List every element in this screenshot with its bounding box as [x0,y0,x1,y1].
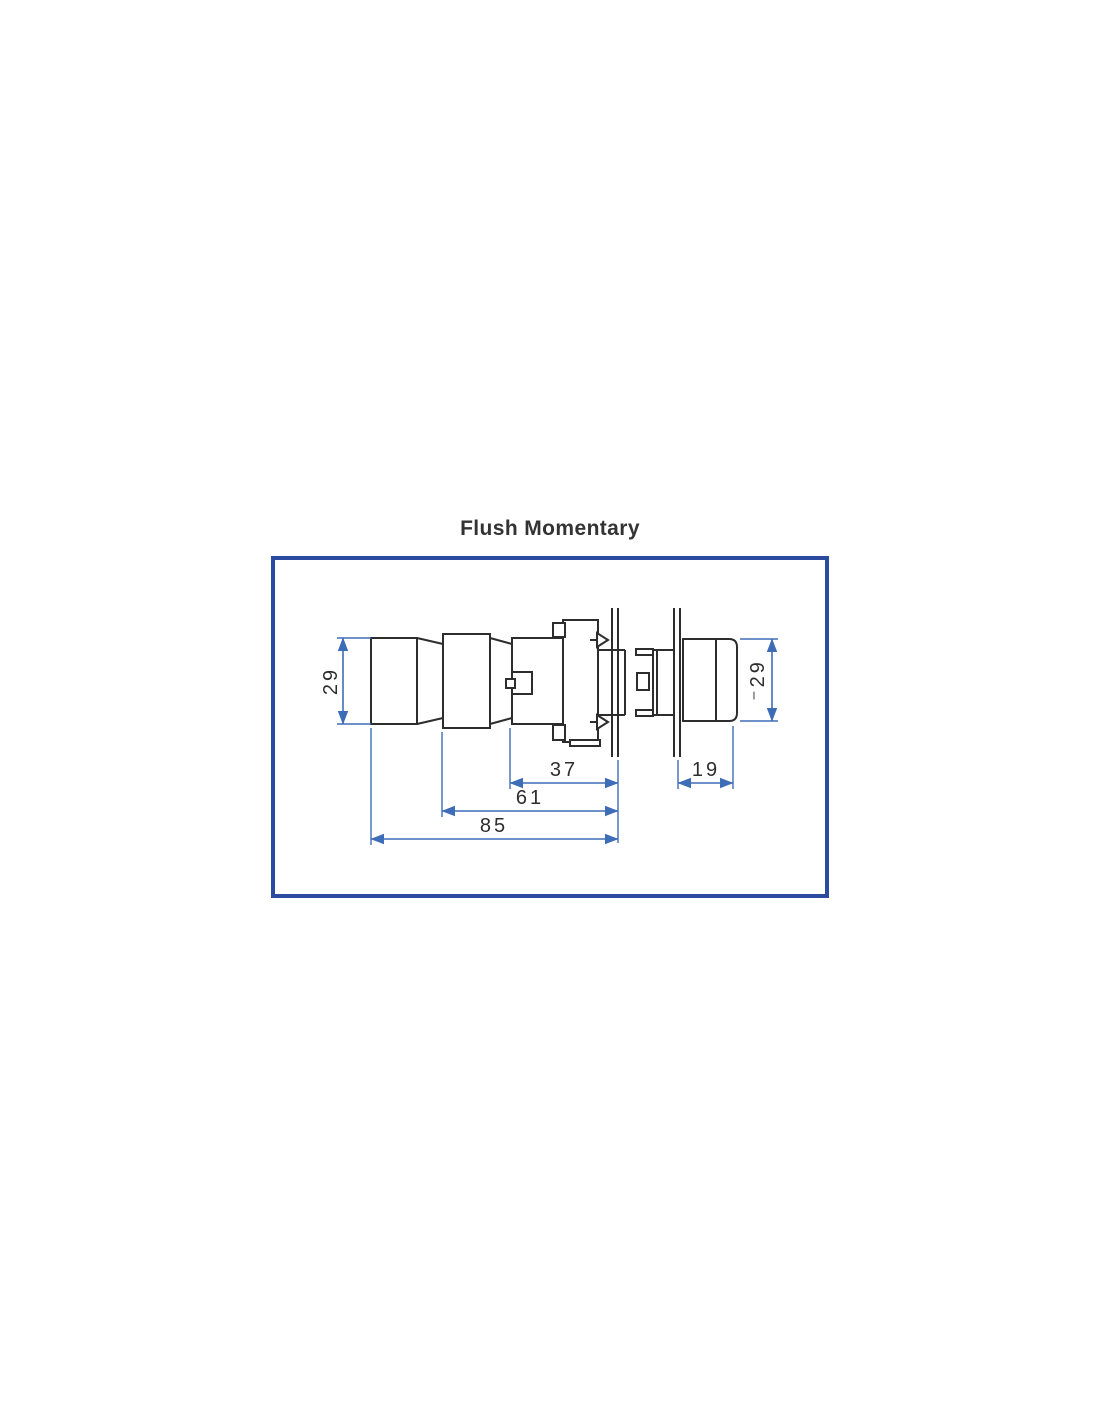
spring-clip-arrow-top [597,633,608,647]
button-head [683,639,737,721]
dimension-label-19: 19 [692,759,720,781]
rear-window [637,673,649,690]
dimension-label-61: 61 [516,787,544,809]
dimension-29-right: ⁻29 [740,639,778,721]
contact-block-2 [443,634,490,728]
contact-block-1 [371,638,417,724]
dimension-label-37: 37 [550,759,578,781]
page: Flush Momentary [0,0,1100,1422]
technical-drawing: 29 ⁻29 37 61 85 19 [0,0,1100,1422]
collar-hook-top [553,623,565,637]
rear-foot-bottom [636,710,653,716]
taper-line [490,638,512,644]
dimension-label-29-right: ⁻29 [747,659,769,701]
mounting-collar [563,620,598,742]
taper-line [417,718,443,724]
latch-lever [570,740,600,746]
taper-line [490,718,512,724]
switch-side-view [371,620,625,746]
rear-foot-top [636,649,653,655]
dimension-37: 37 [510,728,618,843]
dimension-29-left: 29 [320,638,371,724]
spring-clip-arrow-bottom [597,715,608,729]
latch-clip-notch [506,679,515,688]
button-head-side-view [636,639,737,721]
dimension-19: 19 [678,726,733,789]
dimension-label-29-left: 29 [320,667,342,695]
dimension-label-85: 85 [480,815,508,837]
diagram-border [273,558,827,896]
collar-hook-bottom [553,725,565,740]
taper-line [417,638,443,644]
